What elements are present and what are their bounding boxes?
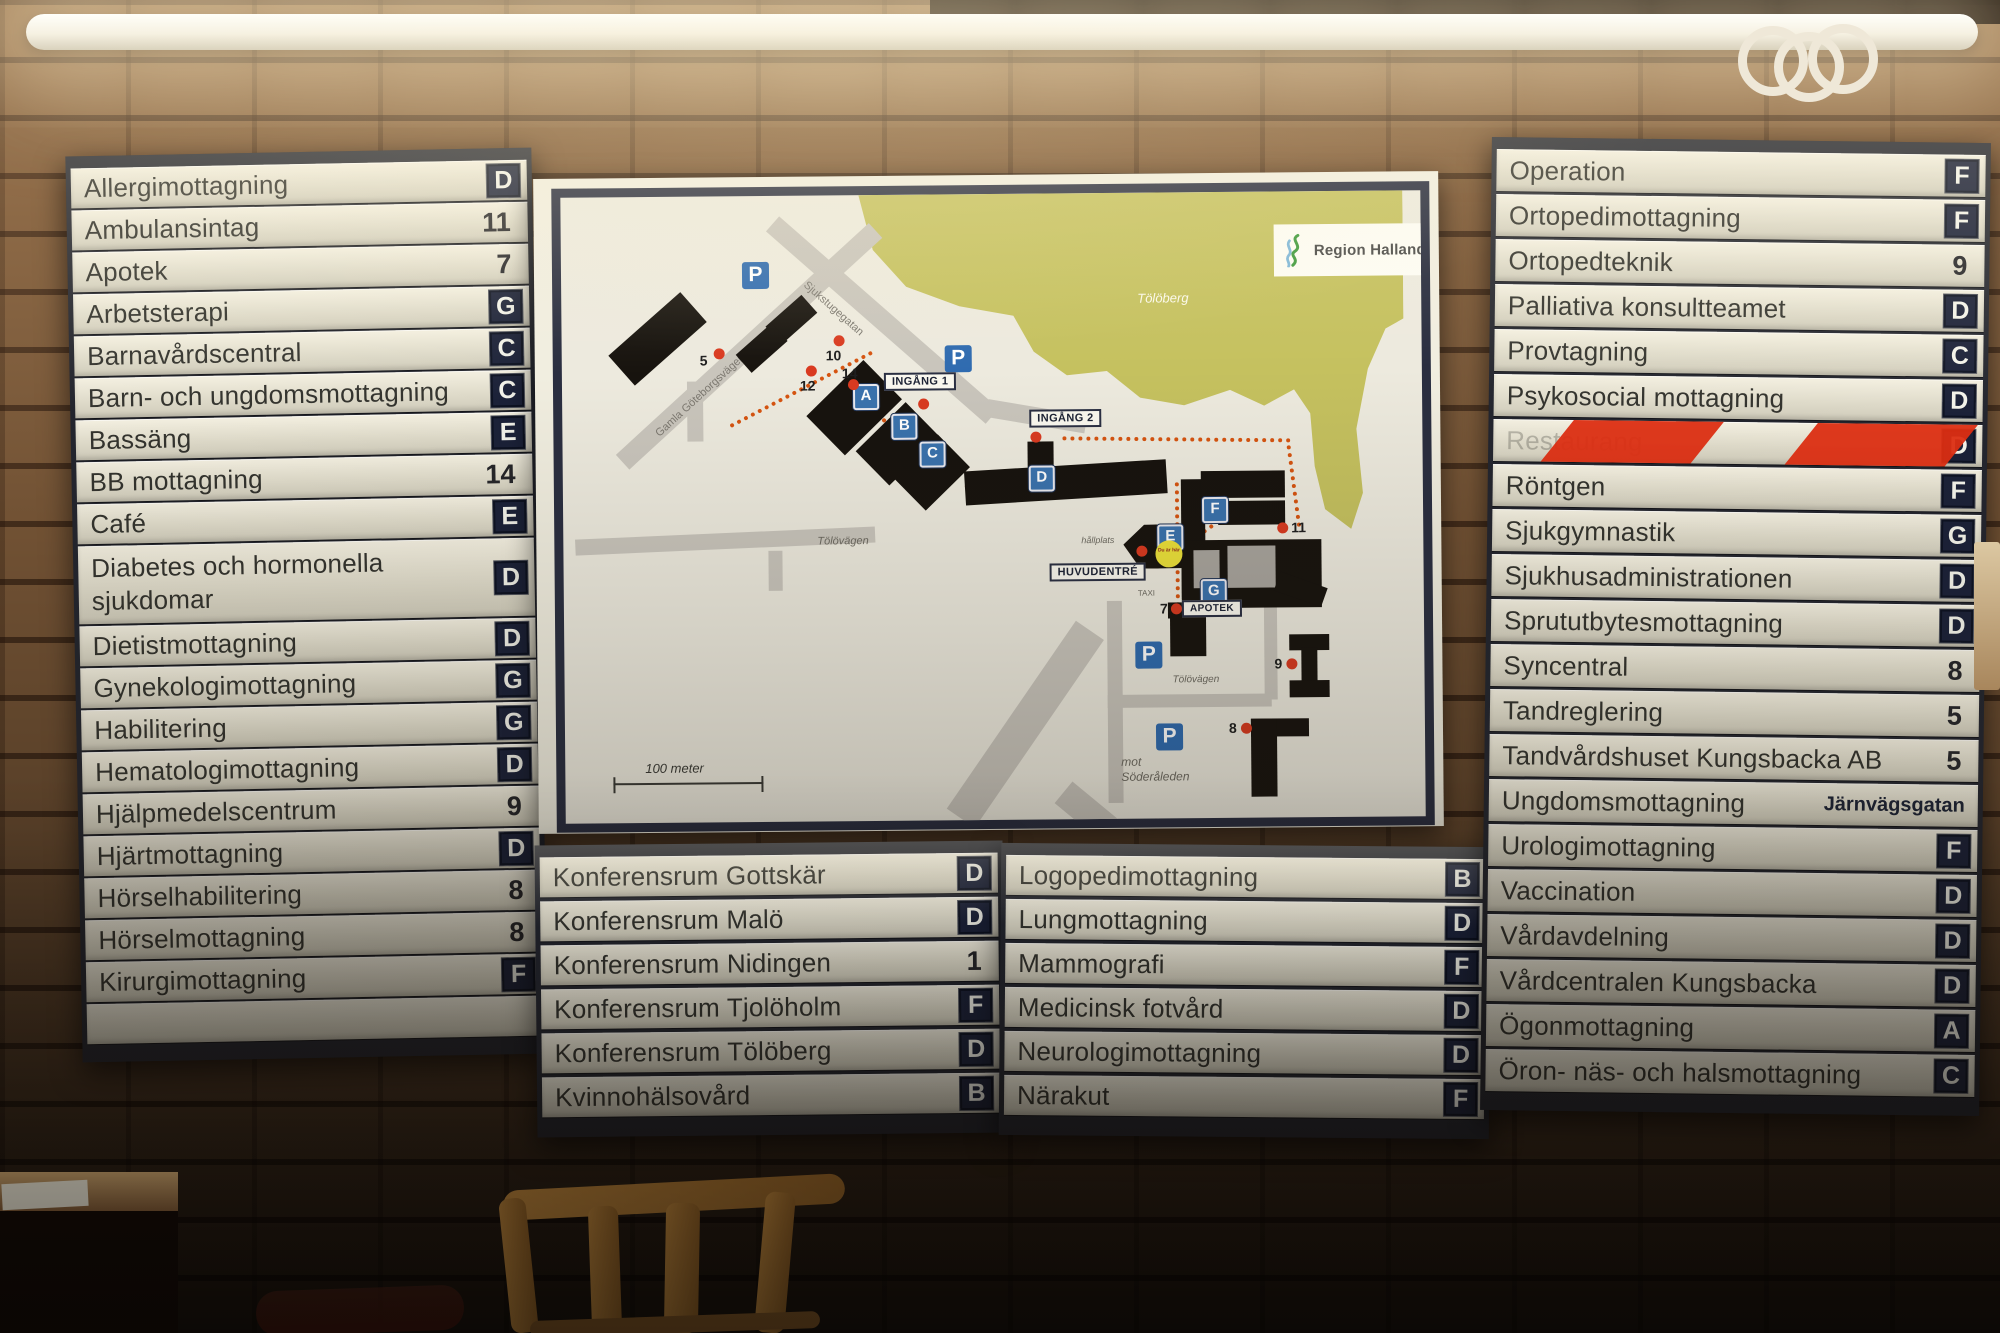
directory-row: Medicinsk fotvårdD	[1005, 987, 1485, 1031]
department-label: Logopedimottagning	[1019, 860, 1259, 893]
parking-icon: P	[1156, 723, 1183, 750]
number-code: 7	[496, 248, 522, 279]
number-code: 8	[509, 916, 535, 947]
map-scale-bar	[613, 782, 763, 785]
you-are-here-marker: Du är här	[1155, 540, 1182, 567]
building-5	[608, 292, 706, 386]
directory-row: BarnavårdscentralC	[74, 328, 531, 377]
directory-row: Ambulansintag11	[71, 202, 528, 251]
department-label: Kirurgimottagning	[99, 963, 307, 998]
department-label: Psykosocial mottagning	[1507, 380, 1785, 414]
department-label: Palliativa konsultteamet	[1508, 290, 1786, 324]
department-label: Ungdomsmottagning	[1502, 785, 1746, 819]
directory-row: RestaurangD	[1493, 419, 1982, 467]
building-apotek	[1170, 612, 1206, 656]
street-label: Järnvägsgatan	[1824, 793, 1971, 818]
letter-badge: F	[502, 957, 536, 991]
letter-badge: D	[1444, 1038, 1477, 1071]
letter-badge: G	[489, 289, 523, 323]
department-label: Kvinnohälsovård	[555, 1080, 751, 1113]
letter-badge: G	[497, 705, 531, 739]
directory-row: VårdavdelningD	[1487, 914, 1976, 962]
hill-label: Tölöberg	[1137, 290, 1188, 305]
directory-row: Syncentral8	[1490, 644, 1979, 692]
department-label: Barn- och ungdomsmottagning	[88, 376, 449, 414]
department-label: Sjukgymnastik	[1505, 515, 1676, 548]
department-label: Syncentral	[1503, 650, 1628, 683]
directory-row: HabiliteringG	[81, 702, 538, 751]
red-dot	[1030, 432, 1041, 443]
department-label: Urologimottagning	[1501, 830, 1716, 864]
letter-badge: E	[493, 499, 527, 533]
letter-badge: G	[1941, 519, 1974, 552]
directory-row: KvinnohälsovårdB	[542, 1073, 1000, 1118]
directory-row: OrtopedimottagningF	[1496, 194, 1985, 242]
directory-row: Hjälpmedelscentrum9	[83, 786, 540, 835]
letter-badge: C	[1943, 339, 1976, 372]
directory-row: UngdomsmottagningJärnvägsgatan	[1489, 779, 1978, 827]
building-number: 5	[700, 352, 708, 368]
fluorescent-lamp	[26, 14, 1978, 50]
red-dot	[1277, 522, 1288, 533]
letter-badge: D	[498, 747, 532, 781]
number-code: 5	[1947, 700, 1972, 731]
building-8	[1251, 718, 1278, 796]
walk-path	[1062, 436, 1290, 442]
number-code: 9	[1952, 250, 1977, 281]
department-label: Ambulansintag	[84, 211, 259, 245]
red-dot	[1171, 603, 1182, 614]
letter-badge: D	[1944, 294, 1977, 327]
taxi-label: TAXI	[1138, 589, 1155, 598]
letter-badge: C	[491, 373, 525, 407]
department-label: Tandreglering	[1503, 695, 1664, 728]
department-label: Sjukhusadministrationen	[1504, 560, 1792, 595]
directory-row: OperationF	[1496, 149, 1985, 197]
department-label: Lungmottagning	[1018, 904, 1208, 937]
department-label: Habilitering	[94, 712, 227, 746]
number-code: 1	[967, 945, 992, 976]
directory-row: Konferensrum TjolöholmF	[541, 985, 999, 1030]
letter-badge: F	[1941, 474, 1974, 507]
department-label: Hörselmottagning	[98, 921, 306, 956]
letter-badge: F	[1945, 159, 1978, 192]
department-label: Hjärtmottagning	[96, 837, 283, 872]
department-label: BB mottagning	[89, 463, 263, 497]
directory-row: ÖgonmottagningA	[1486, 1004, 1975, 1052]
site-map: Tölöberg Gamla Göteborgsvägen Sjukstugeg…	[551, 181, 1435, 833]
red-dot	[1241, 723, 1252, 734]
wall-switch-box	[1974, 542, 2000, 690]
letter-badge: D	[494, 560, 528, 594]
walk-path	[1287, 445, 1302, 527]
directory-row: AllergimottagningD	[71, 160, 528, 209]
directory-row: LogopedimottagningB	[1006, 855, 1486, 899]
directory-row: Öron- näs- och halsmottagningC	[1485, 1049, 1974, 1097]
map-board: Tölöberg Gamla Göteborgsvägen Sjukstugeg…	[533, 171, 1444, 834]
letter-badge: D	[1940, 564, 1973, 597]
directory-row: NeurologimottagningD	[1004, 1031, 1484, 1075]
letter-badge: D	[1935, 969, 1968, 1002]
department-label: Café	[90, 508, 146, 540]
department-label: Gynekologimottagning	[93, 668, 356, 704]
letter-badge: D	[1445, 906, 1478, 939]
directory-row: BB mottagning14	[76, 454, 533, 503]
directory-row: Psykosocial mottagningD	[1494, 374, 1983, 422]
directory-row: Palliativa konsultteametD	[1495, 284, 1984, 332]
building-number: 12	[800, 378, 816, 394]
department-label: Arbetsterapi	[86, 296, 229, 330]
letter-badge: A	[1935, 1014, 1968, 1047]
road-segment	[768, 551, 782, 591]
lamp-cable-coil	[1808, 24, 1878, 94]
directory-row: DietistmottagningD	[79, 618, 536, 667]
directory-row: SprututbytesmottagningD	[1491, 599, 1980, 647]
directory-row: Konferensrum Nidingen1	[541, 941, 999, 986]
building-9	[1290, 680, 1330, 697]
letter-badge: G	[496, 663, 530, 697]
building-d-wing	[964, 459, 1168, 505]
department-label: Dietistmottagning	[92, 627, 297, 662]
letter-badge: D	[1940, 609, 1973, 642]
paper-on-desk	[1, 1180, 88, 1210]
region-halland-logo: Region Halland	[1274, 223, 1426, 276]
directory-row: Diabetes och hormonella sjukdomarD	[78, 538, 535, 625]
directory-row: NärakutF	[1004, 1075, 1484, 1119]
letter-badge: F	[1445, 950, 1478, 983]
directory-row: HjärtmottagningD	[83, 828, 540, 877]
department-label: Hörselhabilitering	[97, 879, 302, 914]
road-label: Tölövägen	[817, 535, 868, 547]
letter-badge: D	[1937, 879, 1970, 912]
second-chair-back	[255, 1284, 464, 1333]
directory-row: Apotek7	[72, 244, 529, 293]
number-code: 11	[482, 206, 521, 238]
directory-row: ArbetsterapiG	[73, 286, 530, 335]
directory-row: Ortopedteknik9	[1495, 239, 1984, 287]
department-label: Mammografi	[1018, 948, 1165, 980]
department-label: Sprututbytesmottagning	[1504, 605, 1783, 639]
letter-badge: B	[960, 1076, 993, 1109]
photo-of-hospital-directory-board: AllergimottagningDAmbulansintag11Apotek7…	[0, 0, 2000, 1333]
department-label: Barnavårdscentral	[87, 337, 302, 372]
letter-badge: D	[1936, 924, 1969, 957]
directory-row: SjukhusadministrationenD	[1491, 554, 1980, 602]
directory-row: Barn- och ungdomsmottagningC	[75, 370, 532, 419]
department-label: Diabetes och hormonella sjukdomar	[91, 544, 495, 618]
building-number: 10	[826, 347, 842, 363]
road-label: Tölövägen	[1173, 674, 1220, 685]
zone-badge-d: D	[1029, 465, 1055, 491]
letter-badge: D	[1445, 994, 1478, 1027]
department-label: Konferensrum Tölöberg	[554, 1035, 831, 1069]
letter-badge: C	[490, 331, 524, 365]
directory-row: Konferensrum TölöbergD	[541, 1029, 999, 1074]
number-code: 14	[485, 458, 526, 490]
directory-panel-bottom-right: LogopedimottagningBLungmottagningDMammog…	[999, 843, 1492, 1139]
number-code: 8	[1947, 655, 1972, 686]
directory-row: UrologimottagningF	[1488, 824, 1977, 872]
chair-slat	[588, 1206, 622, 1333]
department-label: Medicinsk fotvård	[1018, 992, 1224, 1025]
letter-badge: F	[1945, 204, 1978, 237]
letter-badge: D	[1943, 384, 1976, 417]
parking-icon: P	[1135, 641, 1162, 668]
directory-row: RöntgenF	[1492, 464, 1981, 512]
directory-row: Konferensrum MalöD	[540, 897, 998, 942]
directory-row: Konferensrum GottskärD	[540, 853, 998, 898]
red-dot	[834, 335, 845, 346]
letter-badge: D	[959, 1032, 992, 1065]
department-label: Provtagning	[1507, 335, 1648, 368]
directory-row: Tandreglering5	[1490, 689, 1979, 737]
directory-row: LungmottagningD	[1005, 899, 1485, 943]
building-number: 11	[1291, 519, 1306, 535]
department-label: Tandvårdshuset Kungsbacka AB	[1502, 740, 1882, 776]
building-9	[1301, 647, 1317, 683]
directory-row	[87, 996, 544, 1045]
zone-badge-c: C	[919, 441, 945, 467]
department-label: Konferensrum Malö	[553, 903, 784, 936]
pharmacy-label: APOTEK	[1182, 600, 1242, 618]
red-dot	[918, 399, 929, 410]
directory-row: KirurgimottagningF	[86, 954, 543, 1003]
letter-badge: F	[959, 988, 992, 1021]
building-number: 7	[1160, 600, 1168, 616]
department-label: Operation	[1509, 155, 1625, 187]
department-label: Närakut	[1017, 1080, 1110, 1112]
directory-row: Tandvårdshuset Kungsbacka AB5	[1489, 734, 1978, 782]
department-label: Konferensrum Nidingen	[554, 947, 832, 981]
department-label: Röntgen	[1506, 470, 1606, 502]
number-code: 5	[1946, 745, 1971, 776]
directory-row: BassängE	[75, 412, 532, 461]
entrance-1-label: INGÅNG 1	[884, 372, 957, 391]
department-label: Konferensrum Tjolöholm	[554, 991, 841, 1025]
department-label: Hjälpmedelscentrum	[96, 794, 337, 830]
department-label: Konferensrum Gottskär	[553, 859, 826, 893]
courtyard	[1227, 545, 1275, 587]
letter-badge: B	[1446, 862, 1479, 895]
department-label: Vaccination	[1501, 875, 1636, 908]
letter-badge: D	[495, 621, 529, 655]
letter-badge: D	[958, 900, 991, 933]
directory-row: GynekologimottagningG	[80, 660, 537, 709]
directory-row: Hörselmottagning8	[85, 912, 542, 961]
department-label: Hematologimottagning	[95, 752, 360, 788]
building-f-wing	[1201, 470, 1285, 498]
letter-badge: F	[1937, 834, 1970, 867]
department-label: Ögonmottagning	[1499, 1010, 1694, 1043]
directory-row: ProvtagningC	[1494, 329, 1983, 377]
directory-panel-left: AllergimottagningDAmbulansintag11Apotek7…	[65, 148, 548, 1063]
red-dot	[806, 365, 817, 376]
directory-panel-bottom-left: Konferensrum GottskärDKonferensrum MalöD…	[534, 841, 1005, 1138]
number-code: 9	[507, 790, 533, 821]
region-halland-icon	[1282, 233, 1308, 267]
chair-slat	[664, 1203, 700, 1333]
department-label: Apotek	[85, 255, 168, 288]
directory-row: SjukgymnastikG	[1492, 509, 1981, 557]
road-to-soderaleden	[1055, 782, 1146, 833]
directory-row: HematologimottagningD	[82, 744, 539, 793]
directory-row: Vårdcentralen KungsbackaD	[1486, 959, 1975, 1007]
red-dot	[1286, 658, 1297, 669]
department-label: Vårdcentralen Kungsbacka	[1499, 965, 1816, 1000]
directory-row: Hörselhabilitering8	[84, 870, 541, 919]
entrance-2-label: INGÅNG 2	[1029, 409, 1102, 428]
red-dot	[1136, 546, 1147, 557]
letter-badge: D	[958, 856, 991, 889]
parking-icon: P	[945, 345, 972, 372]
road-segment	[1264, 599, 1278, 699]
directory-row: VaccinationD	[1488, 869, 1977, 917]
parking-icon: P	[742, 262, 769, 289]
department-label: Vårdavdelning	[1500, 920, 1669, 953]
letter-badge: D	[499, 831, 533, 865]
region-halland-wordmark: Region Halland	[1314, 241, 1426, 259]
red-dot	[848, 379, 859, 390]
letter-badge: C	[1934, 1059, 1967, 1092]
letter-badge: E	[491, 415, 525, 449]
number-code: 8	[508, 874, 534, 905]
map-scale-label: 100 meter	[645, 760, 704, 776]
letter-badge: D	[487, 163, 521, 197]
bus-stop-label: hållplats	[1081, 535, 1114, 545]
department-label: Ortopedimottagning	[1509, 200, 1741, 234]
department-label: Bassäng	[88, 423, 191, 456]
directory-row: MammografiF	[1005, 943, 1485, 987]
building-number: 8	[1229, 720, 1237, 736]
department-label: Neurologimottagning	[1017, 1036, 1261, 1069]
building-number: 9	[1274, 655, 1282, 671]
main-entrance-label: HUVUDENTRÉ	[1050, 563, 1147, 582]
red-dot	[714, 348, 725, 359]
road-tolovagen-south	[1108, 694, 1272, 708]
zone-badge-f: F	[1202, 497, 1228, 523]
department-label: Öron- näs- och halsmottagning	[1498, 1055, 1861, 1090]
letter-badge: F	[1444, 1082, 1477, 1115]
soderaleden-label: mot Söderåleden	[1121, 754, 1199, 785]
directory-panel-right: OperationFOrtopedimottagningFOrtopedtekn…	[1480, 137, 1991, 1116]
directory-row: CaféE	[77, 496, 534, 545]
zone-badge-b: B	[891, 414, 917, 440]
department-label: Allergimottagning	[84, 169, 289, 204]
desk-body	[0, 1211, 178, 1333]
department-label: Ortopedteknik	[1508, 245, 1673, 278]
